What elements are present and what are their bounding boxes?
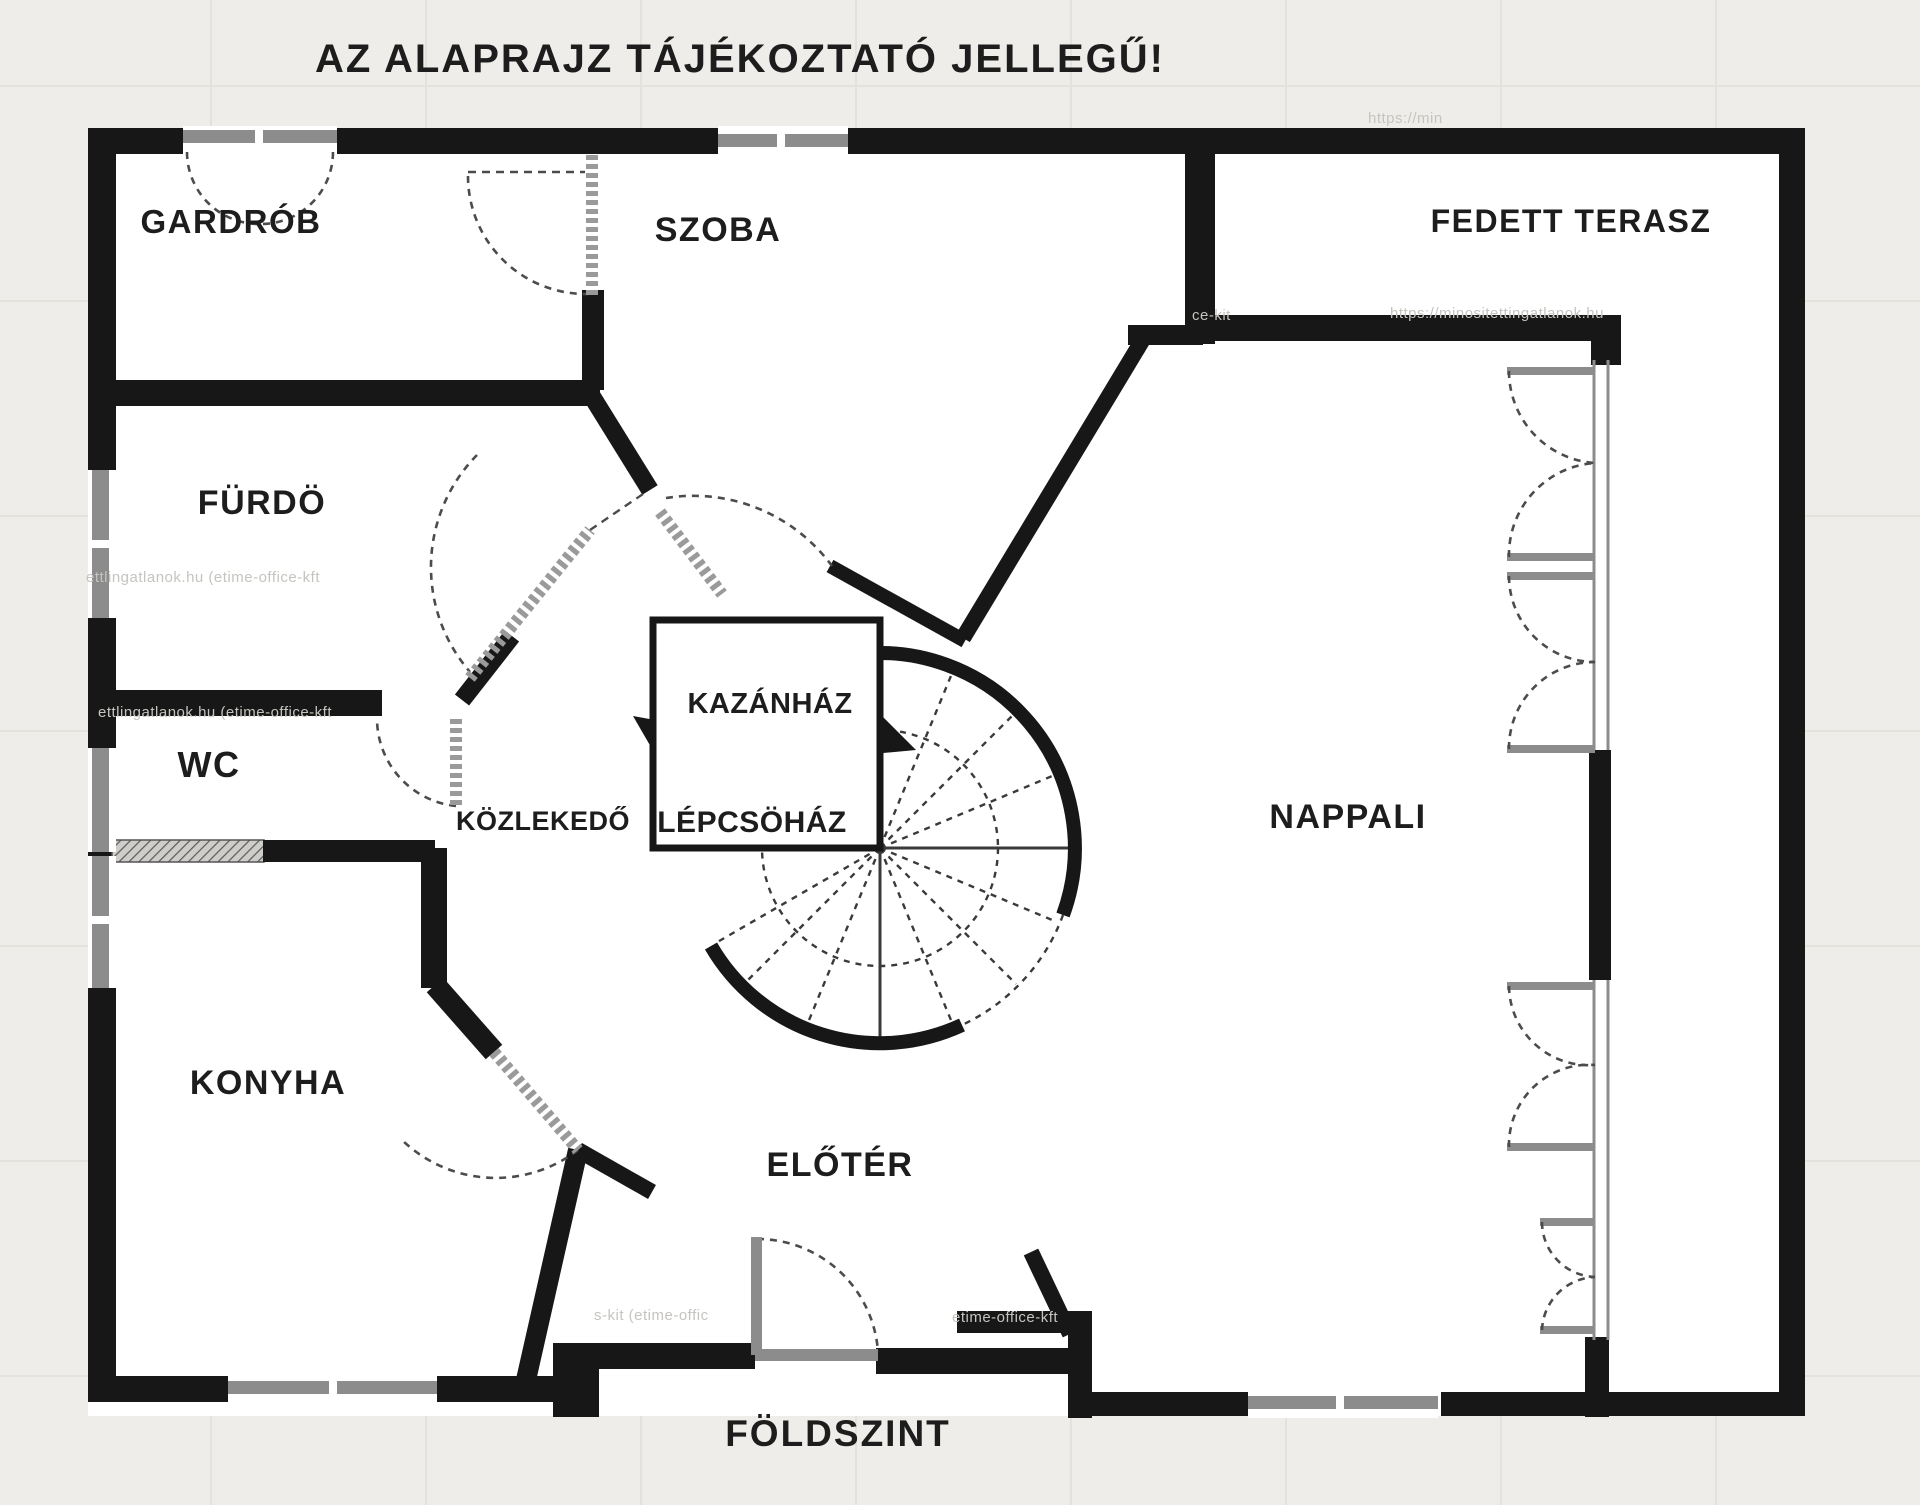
room-label-fedett-terasz: FEDETT TERASZ [1431, 203, 1712, 239]
room-label-kozlekedo: KÖZLEKEDŐ [456, 805, 630, 836]
watermark: etime-office-kft [952, 1309, 1058, 1326]
watermark: s-kit (etime-offic [594, 1307, 709, 1324]
wc-hatched-wall [112, 840, 264, 862]
room-label-lepcsohaz: LÉPCSÖHÁZ [657, 805, 847, 839]
wardrobe-room-divider [582, 290, 604, 390]
room-label-szoba: SZOBA [655, 211, 782, 249]
room-label-eloter: ELŐTÉR [767, 1146, 914, 1184]
wardrobe-bottom-wall [100, 380, 600, 406]
room-label-wc: WC [178, 744, 241, 785]
entrance-threshold [755, 1349, 878, 1361]
floor-plan-page: AZ ALAPRAJZ TÁJÉKOZTATÓ JELLEGŰ! [0, 0, 1920, 1505]
watermark: ettlingatlanok.hu (etime-office-kft [98, 704, 332, 721]
room-label-konyha: KONYHA [190, 1064, 346, 1102]
room-label-nappali: NAPPALI [1269, 798, 1426, 836]
room-label-kazanhaz: KAZÁNHÁZ [687, 686, 852, 720]
watermark: https://minositettingatlanok.hu [1390, 305, 1604, 322]
wc-window [92, 748, 109, 852]
plan-disclaimer-title: AZ ALAPRAJZ TÁJÉKOZTATÓ JELLEGŰ! [315, 35, 1165, 81]
room-label-gardrob: GARDRÓB [141, 203, 322, 240]
watermark: ettlingatlanok.hu (etime-office-kft [86, 569, 320, 586]
watermark: https://min [1368, 110, 1443, 127]
room-label-furdo: FÜRDÖ [198, 484, 326, 522]
watermark: ce-kit [1192, 307, 1231, 324]
floor-label: FÖLDSZINT [725, 1413, 951, 1454]
floor-plan-svg: AZ ALAPRAJZ TÁJÉKOZTATÓ JELLEGŰ! [0, 0, 1920, 1505]
